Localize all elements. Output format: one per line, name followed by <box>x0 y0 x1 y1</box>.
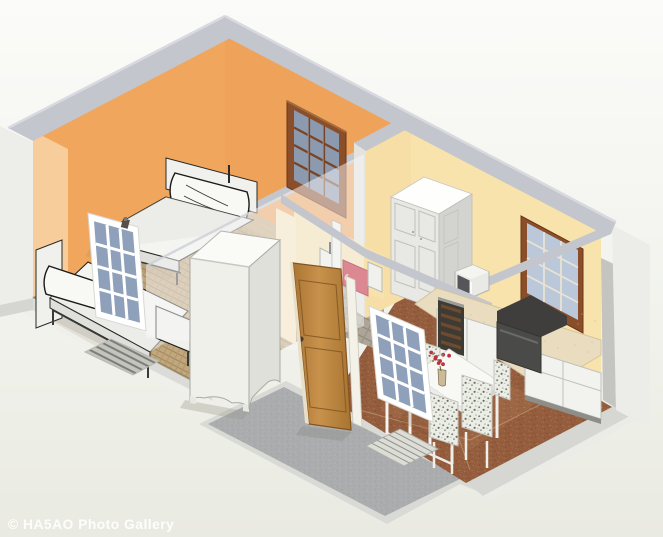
svg-text:© HA5AO Photo Gallery: © HA5AO Photo Gallery <box>8 517 174 532</box>
